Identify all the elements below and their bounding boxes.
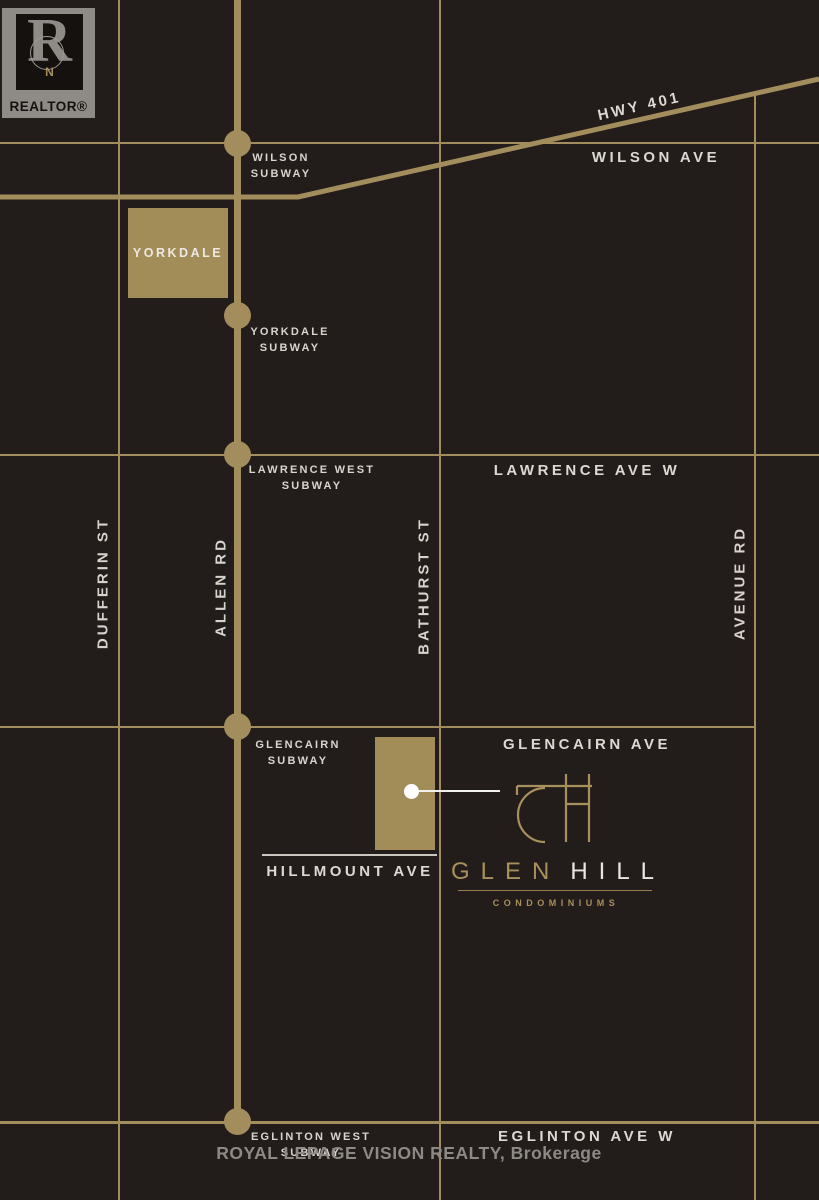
glencairn-ave-line (0, 726, 756, 728)
dufferin-st-line (118, 0, 120, 1200)
wilson-subway-label: WILSON SUBWAY (251, 151, 311, 183)
lawrence-west-subway-label: LAWRENCE WEST SUBWAY (249, 463, 375, 495)
avenue-rd-label: AVENUE RD (732, 526, 749, 640)
site-marker-dot (404, 784, 419, 799)
hwy-401-line (0, 0, 819, 1200)
wilson-ave-label: WILSON AVE (592, 149, 720, 166)
brand-subtitle: CONDOMINIUMS (493, 898, 620, 908)
brand-wordmark: GLENHILL (451, 858, 665, 886)
glencairn-subway-dot (224, 713, 251, 740)
bathurst-st-line (439, 0, 441, 1200)
allen-rd-label: ALLEN RD (213, 537, 230, 637)
bathurst-st-label: BATHURST ST (416, 517, 433, 655)
yorkdale-subway-dot (224, 302, 251, 329)
realtor-label: REALTOR® (2, 99, 95, 114)
wilson-subway-dot (224, 130, 251, 157)
glencairn-ave-label: GLENCAIRN AVE (503, 736, 671, 753)
map: YORKDALE HWY 401 WILSON AVE LAWRENCE AVE… (0, 0, 819, 1200)
lawrence-ave-line (0, 454, 819, 456)
lawrence-ave-label: LAWRENCE AVE W (494, 462, 681, 479)
hillmount-ave-label: HILLMOUNT AVE (266, 863, 433, 880)
glencairn-subway-label: GLENCAIRN SUBWAY (255, 738, 340, 770)
hillmount-ave-line (262, 854, 437, 856)
brokerage-watermark: ROYAL LEPAGE VISION REALTY, Brokerage (216, 1143, 601, 1164)
avenue-rd-line (754, 96, 756, 1200)
site-callout-line (418, 790, 500, 792)
yorkdale-block: YORKDALE (128, 208, 228, 298)
yorkdale-subway-label: YORKDALE SUBWAY (250, 325, 329, 357)
lawrence-west-subway-dot (224, 441, 251, 468)
eglinton-west-subway-dot (224, 1108, 251, 1135)
brand-underline (458, 890, 652, 891)
hwy-401-label: HWY 401 (596, 89, 683, 124)
wilson-ave-line (0, 142, 819, 144)
yorkdale-label: YORKDALE (128, 246, 228, 260)
realtor-compass-n: N (16, 65, 83, 79)
brand-glen: GLEN (451, 858, 560, 885)
glen-hill-monogram-logo (505, 770, 615, 848)
dufferin-st-label: DUFFERIN ST (95, 517, 112, 649)
realtor-badge: R N REALTOR® (2, 8, 95, 118)
allen-rd-line (234, 0, 241, 1122)
eglinton-ave-line (0, 1121, 819, 1124)
realtor-r-icon: R N (16, 14, 83, 90)
brand-hill: HILL (560, 858, 665, 885)
